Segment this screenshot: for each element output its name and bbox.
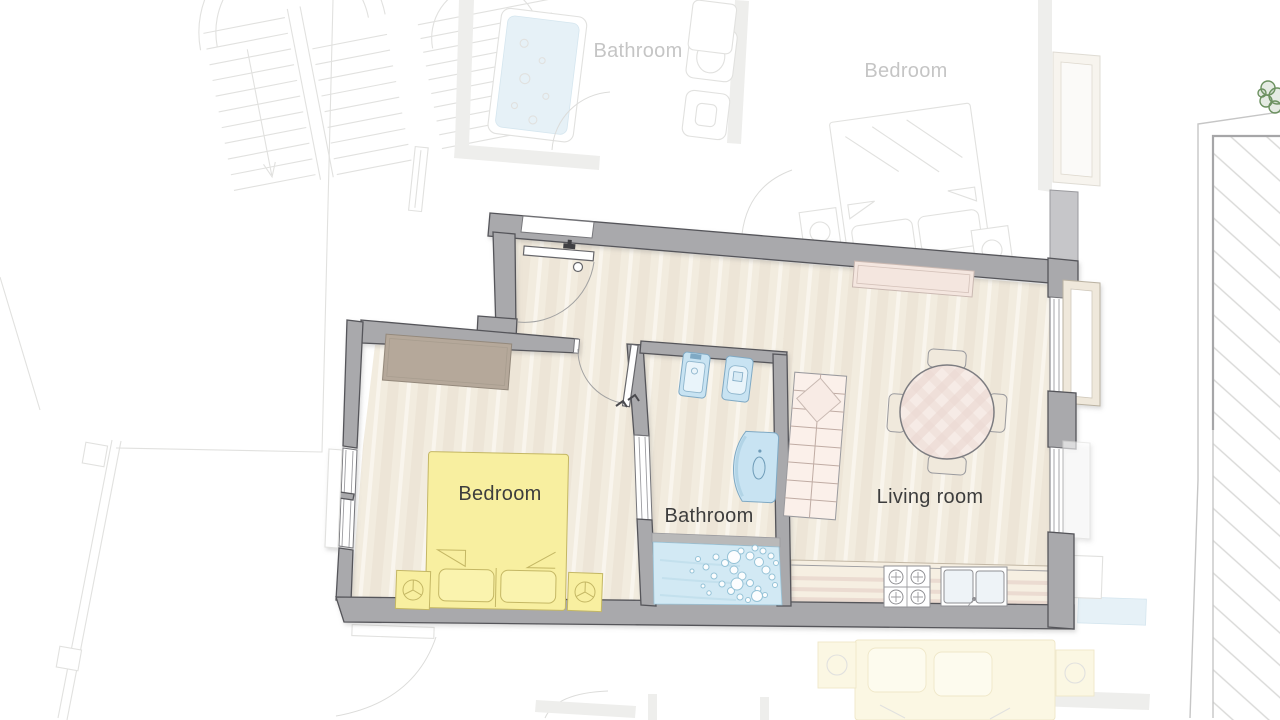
wall-left-upper <box>343 320 363 448</box>
ghost-bedroom-upper <box>742 0 1100 274</box>
double-bed <box>425 452 568 611</box>
living-room-label: Living room <box>877 486 984 508</box>
ghost-boundary-lines <box>0 0 333 720</box>
kitchen-sink-icon <box>941 567 1007 606</box>
ghost-door-leaf-bottom <box>352 625 434 639</box>
floor-plan-canvas: Bedroom Bathroom Living room Bathroom Be… <box>0 0 1280 720</box>
window-frame-living-outer <box>1063 441 1090 539</box>
ghost-shower-bottom <box>1078 597 1147 625</box>
wall-right-mid <box>1048 391 1076 449</box>
shelf-unit <box>784 372 847 520</box>
bathroom-sink-icon <box>678 352 710 399</box>
ghost-bidet-icon <box>681 89 730 140</box>
ghost-bedroom-label: Bedroom <box>864 60 947 82</box>
window-living-2 <box>1050 447 1063 533</box>
nightstand-right <box>567 572 602 611</box>
nightstand-left <box>395 570 430 609</box>
ghost-washbasin-icon <box>687 0 737 55</box>
stove-icon <box>884 566 930 607</box>
bathroom-door-opening <box>634 435 652 520</box>
ghost-radiator <box>409 147 429 212</box>
floor-plan-svg: Bedroom Bathroom Living room Bathroom Be… <box>0 0 1280 720</box>
wall-left-lower <box>336 548 353 602</box>
ghost-bathroom-label: Bathroom <box>593 40 682 62</box>
window-living-1 <box>1050 297 1063 392</box>
ghost-bathroom-upper <box>454 0 749 170</box>
shower <box>652 533 782 605</box>
terrace-hatch-area <box>1213 136 1280 720</box>
ghost-staircase <box>183 0 414 197</box>
bathroom-toilet-icon <box>721 356 753 403</box>
bedroom-label: Bedroom <box>458 483 541 505</box>
ghost-party-wall <box>1050 190 1078 262</box>
tree-icon <box>1258 81 1280 113</box>
wall-right-bottom <box>1048 532 1074 629</box>
apartment: Bedroom Bathroom Living room <box>325 213 1100 629</box>
ghost-door-arc-bedroom <box>742 170 792 234</box>
ghost-terrace <box>1190 81 1280 720</box>
wardrobe <box>382 334 511 390</box>
ghost-bathtub <box>487 7 588 143</box>
ghost-bed-bottom <box>818 640 1094 720</box>
bathroom-label: Bathroom <box>664 505 753 527</box>
